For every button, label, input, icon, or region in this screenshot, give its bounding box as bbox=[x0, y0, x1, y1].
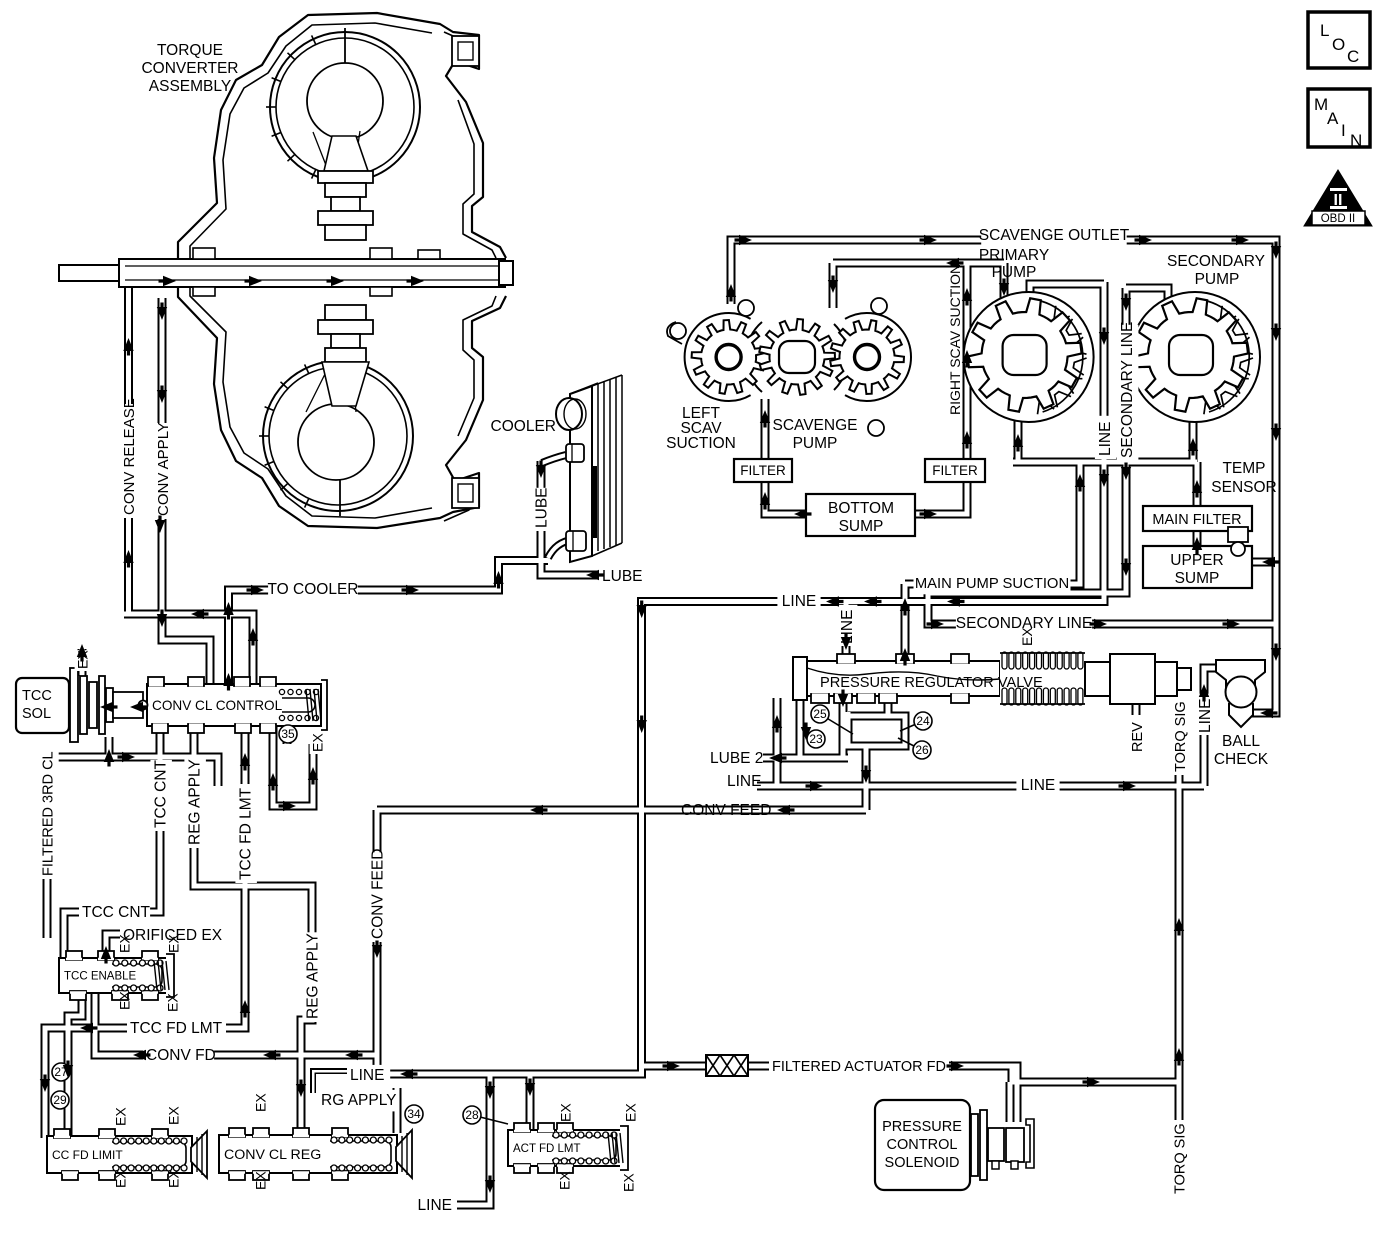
svg-text:SCAVENGE OUTLET: SCAVENGE OUTLET bbox=[979, 227, 1130, 244]
svg-text:N: N bbox=[1350, 131, 1362, 150]
svg-text:BALL: BALL bbox=[1222, 733, 1260, 750]
svg-text:I: I bbox=[1341, 121, 1346, 140]
svg-text:LINE: LINE bbox=[1021, 777, 1055, 794]
svg-text:EX: EX bbox=[166, 1169, 182, 1188]
svg-text:PUMP: PUMP bbox=[1195, 271, 1240, 288]
svg-text:CONV APPLY: CONV APPLY bbox=[155, 422, 172, 516]
svg-text:CONVERTER: CONVERTER bbox=[141, 60, 238, 77]
svg-text:TCC: TCC bbox=[22, 688, 52, 704]
svg-text:EX: EX bbox=[253, 1093, 269, 1112]
svg-text:EX: EX bbox=[113, 1169, 129, 1188]
svg-text:LINE: LINE bbox=[727, 773, 761, 790]
svg-text:TCC FD LMT: TCC FD LMT bbox=[238, 787, 255, 880]
svg-text:EX: EX bbox=[117, 991, 133, 1010]
svg-text:EX: EX bbox=[166, 934, 182, 953]
svg-text:TORQ SIG: TORQ SIG bbox=[1173, 701, 1189, 772]
svg-text:EX: EX bbox=[310, 733, 326, 752]
svg-text:FILTERED 3RD CL: FILTERED 3RD CL bbox=[41, 751, 57, 876]
svg-text:RG APPLY: RG APPLY bbox=[321, 1092, 397, 1109]
svg-text:REG APPLY: REG APPLY bbox=[187, 759, 204, 845]
svg-text:PUMP: PUMP bbox=[992, 264, 1037, 281]
svg-text:REV: REV bbox=[1130, 722, 1146, 752]
svg-text:ACT FD LMT: ACT FD LMT bbox=[513, 1143, 581, 1155]
svg-text:26: 26 bbox=[915, 743, 929, 757]
svg-text:SOLENOID: SOLENOID bbox=[885, 1155, 960, 1171]
svg-text:BOTTOM: BOTTOM bbox=[828, 500, 894, 517]
svg-text:LINE: LINE bbox=[1097, 422, 1114, 456]
svg-text:35: 35 bbox=[281, 727, 295, 741]
svg-text:L: L bbox=[1320, 21, 1329, 40]
svg-text:TORQUE: TORQUE bbox=[157, 42, 223, 59]
svg-text:UPPER: UPPER bbox=[1170, 552, 1223, 569]
svg-text:TCC FD LMT: TCC FD LMT bbox=[130, 1020, 223, 1037]
svg-text:CONV CL CONTROL: CONV CL CONTROL bbox=[152, 698, 283, 713]
svg-text:CONV FD: CONV FD bbox=[146, 1047, 216, 1064]
svg-text:LINE: LINE bbox=[782, 593, 816, 610]
svg-text:CONTROL: CONTROL bbox=[887, 1137, 958, 1153]
svg-text:TCC CNT: TCC CNT bbox=[153, 759, 170, 828]
svg-text:CONV FEED: CONV FEED bbox=[681, 802, 771, 819]
svg-text:24: 24 bbox=[916, 714, 930, 728]
svg-text:EX: EX bbox=[166, 1106, 182, 1125]
svg-text:SUMP: SUMP bbox=[1175, 570, 1220, 587]
svg-text:23: 23 bbox=[809, 732, 823, 746]
svg-text:FILTER: FILTER bbox=[932, 463, 978, 478]
svg-text:RIGHT SCAV SUCTION: RIGHT SCAV SUCTION bbox=[947, 264, 963, 415]
svg-text:CC FD LIMIT: CC FD LIMIT bbox=[52, 1148, 123, 1162]
svg-text:28: 28 bbox=[465, 1108, 479, 1122]
svg-text:SUCTION: SUCTION bbox=[666, 435, 736, 452]
svg-text:LUBE 2: LUBE 2 bbox=[710, 750, 763, 767]
svg-text:CONV CL REG: CONV CL REG bbox=[224, 1147, 321, 1163]
svg-text:TO COOLER: TO COOLER bbox=[267, 581, 358, 598]
svg-text:PRESSURE REGULATOR VALVE: PRESSURE REGULATOR VALVE bbox=[820, 675, 1043, 691]
svg-text:CONV RELEASE: CONV RELEASE bbox=[121, 398, 138, 515]
svg-text:MAIN PUMP SUCTION: MAIN PUMP SUCTION bbox=[915, 576, 1069, 592]
svg-text:LUBE: LUBE bbox=[602, 568, 643, 585]
svg-text:TCC CNT: TCC CNT bbox=[82, 904, 151, 921]
svg-text:SUMP: SUMP bbox=[839, 518, 884, 535]
svg-text:FILTERED ACTUATOR FD: FILTERED ACTUATOR FD bbox=[772, 1059, 946, 1075]
svg-text:CONV FEED: CONV FEED bbox=[370, 849, 387, 939]
svg-text:EX: EX bbox=[621, 1173, 637, 1192]
svg-text:SECONDARY LINE: SECONDARY LINE bbox=[1119, 322, 1136, 458]
svg-text:SOL: SOL bbox=[22, 706, 51, 722]
svg-text:EX: EX bbox=[165, 993, 181, 1012]
svg-text:PRESSURE: PRESSURE bbox=[882, 1119, 962, 1135]
svg-text:EX: EX bbox=[1019, 627, 1035, 646]
svg-text:TORQ SIG: TORQ SIG bbox=[1173, 1123, 1189, 1194]
svg-text:TCC ENABLE: TCC ENABLE bbox=[64, 971, 137, 983]
svg-text:SECONDARY: SECONDARY bbox=[1167, 253, 1265, 270]
svg-text:FILTER: FILTER bbox=[740, 463, 786, 478]
svg-text:MAIN FILTER: MAIN FILTER bbox=[1152, 512, 1241, 528]
svg-text:C: C bbox=[1347, 47, 1359, 66]
svg-text:OBD II: OBD II bbox=[1321, 213, 1356, 225]
svg-text:EX: EX bbox=[557, 1171, 573, 1190]
svg-text:A: A bbox=[1327, 109, 1339, 128]
svg-text:EX: EX bbox=[113, 1107, 129, 1126]
svg-text:29: 29 bbox=[53, 1093, 67, 1107]
svg-text:LINE: LINE bbox=[1197, 699, 1214, 733]
svg-text:SENSOR: SENSOR bbox=[1211, 479, 1276, 496]
svg-text:LINE: LINE bbox=[418, 1197, 452, 1214]
svg-text:LUBE: LUBE bbox=[534, 488, 551, 529]
svg-text:O: O bbox=[1332, 35, 1345, 54]
svg-text:PRIMARY: PRIMARY bbox=[979, 247, 1049, 264]
svg-text:EX: EX bbox=[558, 1103, 574, 1122]
svg-text:REG APPLY: REG APPLY bbox=[305, 933, 322, 1019]
svg-text:25: 25 bbox=[813, 707, 827, 721]
svg-text:CHECK: CHECK bbox=[1214, 751, 1269, 768]
svg-text:EX: EX bbox=[117, 934, 133, 953]
svg-text:TEMP: TEMP bbox=[1222, 460, 1265, 477]
svg-text:ASSEMBLY: ASSEMBLY bbox=[149, 78, 231, 95]
svg-text:EX: EX bbox=[623, 1103, 639, 1122]
svg-text:EX: EX bbox=[253, 1171, 269, 1190]
svg-text:34: 34 bbox=[407, 1107, 421, 1121]
svg-text:COOLER: COOLER bbox=[491, 418, 556, 435]
svg-text:LINE: LINE bbox=[350, 1067, 384, 1084]
svg-text:SCAVENGE: SCAVENGE bbox=[773, 417, 858, 434]
svg-text:PUMP: PUMP bbox=[793, 435, 838, 452]
